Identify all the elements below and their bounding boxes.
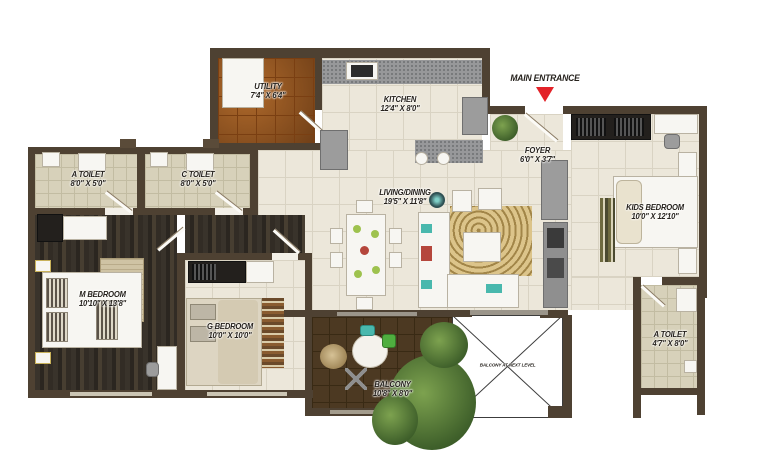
m-pillow [46,312,68,342]
wall-entrance-left [490,106,525,114]
toilet-sink [186,153,214,171]
toilet-sink [676,288,697,312]
wall-right-outer [699,106,707,298]
cushion [421,280,432,289]
wall-left-outer [28,147,35,397]
coffee-table [463,232,501,262]
balcony-sliding-door [337,312,417,316]
balcony-next-level-label: BALCONY AT NEXT LEVEL [480,363,536,368]
corridor-floor [571,277,633,310]
dining-chair [330,228,343,244]
kitchen-cabinet [320,130,348,170]
toilet-wc [42,152,60,167]
cushion [421,246,432,261]
wall-stub [203,139,219,148]
desk-chair [664,134,680,149]
floor-plan: UTILITY 7'4" X 6'4" KITCHEN 12'4" X 8'0"… [0,0,760,461]
wardrobe-hangers [192,264,216,280]
g-bedroom-label: G BEDROOM 10'0" X 10'0" [183,322,278,341]
g-blanket [218,300,258,384]
wall-top-right-wing [563,106,707,114]
hallway-floor [185,215,305,253]
window-m-bedroom [70,392,152,396]
wall-toiletR-right [697,283,705,415]
tree-foliage [420,322,468,368]
dining-table [346,214,386,296]
armchair [478,188,502,210]
g-pillow [190,304,216,320]
kitchen-stool [437,152,450,165]
wall-utility-right [315,48,322,110]
plate [353,225,361,233]
a-toilet-left-label: A TOILET 8'0" X 5'0" [41,170,136,189]
tree-foliage [372,395,418,445]
utility-label: UTILITY 7'4" X 6'4" [221,82,316,101]
wall-stub [120,139,136,148]
dining-chair [389,252,402,268]
m-dresser [157,346,177,390]
balcony-label: BALCONY 10'8" X 8'0" [347,380,437,399]
wardrobe-hangers [576,118,606,136]
m-bedroom-label: M BEDROOM 10'10" X 13'8" [48,290,157,309]
dining-chair [389,228,402,244]
basket [320,344,347,369]
dining-chair [330,252,343,268]
sofa-section [447,274,519,308]
living-dining-label: LIVING/DINING 19'5" X 11'8" [343,188,467,207]
tall-cabinet [541,160,568,220]
cabinet-shelf [547,258,564,278]
plate [372,266,380,274]
room-dims: 7'4" X 6'4" [221,91,316,100]
wall-toilets-right [250,147,258,215]
wall-xbalcony-corner [548,406,566,418]
balcony-chair [360,325,375,336]
wall-toiletR-bottom [633,388,705,395]
a-toilet-right-label: A TOILET 4'7" X 8'0" [632,330,708,349]
cushion [486,284,502,293]
wall-top-main [210,48,490,58]
cooktop [351,65,373,77]
nightstand [678,248,697,274]
m-chair [146,362,159,377]
foyer-plant [492,115,518,141]
balcony-chair [382,334,396,348]
kitchen-stool [415,152,428,165]
m-wardrobe-dark [37,214,63,242]
window-g-bedroom [207,392,287,396]
toilet-sink [78,153,106,171]
c-toilet-label: C TOILET 8'0" X 5'0" [149,170,248,189]
toilet-wc [150,152,168,167]
cushion [421,224,432,233]
nightstand [678,152,697,178]
plate [354,270,362,278]
kids-bedroom-label: KIDS BEDROOM 10'0" X 12'10" [603,203,708,222]
wall-xbalcony-right [563,315,572,418]
wardrobe-hangers [614,118,644,136]
door-gap [272,253,298,260]
nightstand [35,352,51,364]
plate [371,230,379,238]
study-desk [654,114,698,134]
entrance-arrow-icon [536,87,554,102]
wall-utility-left [210,48,218,150]
nightstand [35,260,51,272]
centerpiece [360,246,369,255]
toilet-wc [684,360,697,373]
main-entrance-label: MAIN ENTRANCE [498,73,593,84]
g-shelf [246,261,274,283]
m-wardrobe [63,216,107,240]
sliding-door-track [470,310,548,315]
cabinet-shelf [547,228,564,248]
foyer-label: FOYER 6'0" X 3'7" [497,146,578,165]
kitchen-label: KITCHEN 12'4" X 8'0" [334,95,467,114]
wall-toilet-divider [137,147,145,215]
dining-chair [356,297,373,310]
